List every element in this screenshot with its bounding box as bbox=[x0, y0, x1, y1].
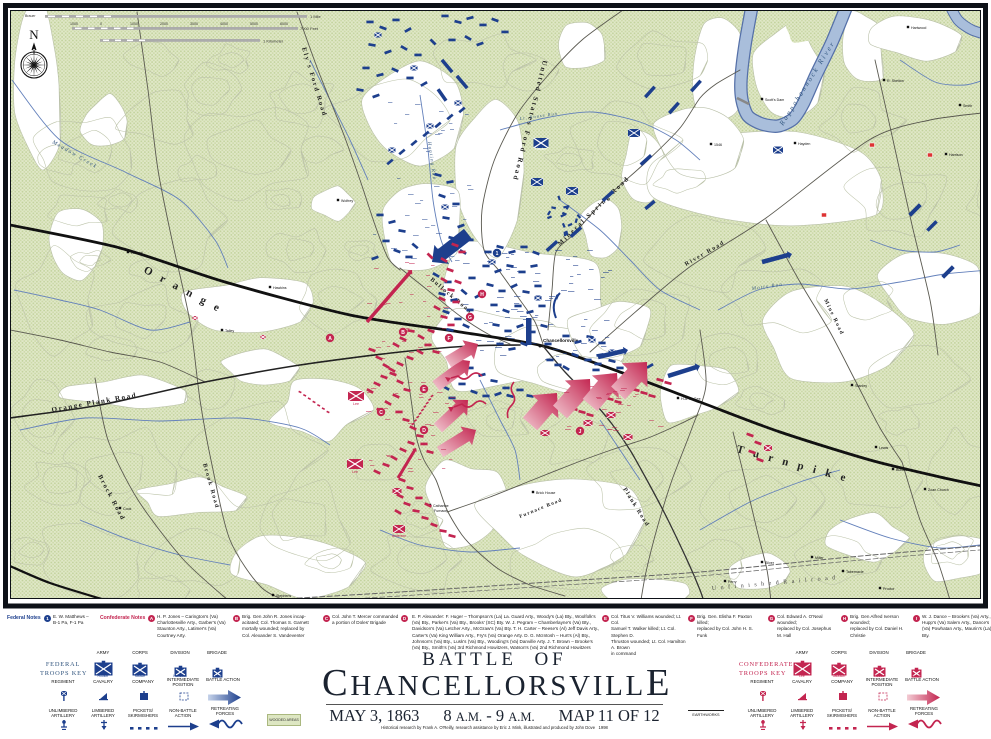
svg-text:7000 Feet: 7000 Feet bbox=[300, 26, 319, 31]
svg-text:Lee: Lee bbox=[353, 402, 359, 406]
svg-text:0: 0 bbox=[100, 22, 102, 26]
svg-text:3000: 3000 bbox=[190, 22, 198, 26]
svg-text:Talley: Talley bbox=[225, 329, 234, 333]
svg-text:Smith: Smith bbox=[963, 104, 972, 108]
svg-text:Furnace: Furnace bbox=[434, 509, 447, 513]
svg-text:Stanley: Stanley bbox=[855, 384, 867, 388]
svg-text:A: A bbox=[328, 336, 332, 342]
svg-text:D: D bbox=[422, 428, 426, 434]
svg-text:Catharine: Catharine bbox=[433, 504, 449, 508]
svg-text:H.A. McGee: H.A. McGee bbox=[681, 397, 701, 401]
svg-text:H: H bbox=[480, 292, 484, 298]
svg-text:Scott's Dam: Scott's Dam bbox=[765, 98, 784, 102]
svg-text:Brick House: Brick House bbox=[536, 491, 555, 495]
svg-text:6000: 6000 bbox=[280, 22, 288, 26]
svg-text:Anderson: Anderson bbox=[392, 534, 406, 538]
svg-text:Brauer: Brauer bbox=[25, 14, 36, 18]
svg-text:1000: 1000 bbox=[70, 22, 78, 26]
svg-text:1 Kilometer: 1 Kilometer bbox=[263, 39, 284, 44]
svg-text:F: F bbox=[447, 336, 450, 342]
svg-text:1546: 1546 bbox=[714, 143, 722, 147]
svg-text:Chancellorsville: Chancellorsville bbox=[543, 338, 579, 343]
svg-text:5000: 5000 bbox=[250, 22, 258, 26]
svg-text:Hooker: Hooker bbox=[535, 147, 547, 151]
svg-text:Harrison: Harrison bbox=[949, 153, 963, 157]
svg-text:B: B bbox=[401, 330, 405, 336]
svg-text:Hawkins: Hawkins bbox=[273, 286, 287, 290]
svg-text:Luckett: Luckett bbox=[131, 251, 143, 255]
svg-text:Lee: Lee bbox=[352, 470, 358, 474]
svg-text:G: G bbox=[468, 315, 472, 321]
svg-text:R. Shelton: R. Shelton bbox=[887, 79, 904, 83]
svg-text:C: C bbox=[379, 410, 383, 416]
svg-text:Stephens: Stephens bbox=[276, 594, 291, 598]
svg-text:Miller: Miller bbox=[815, 556, 824, 560]
svg-text:Zoan Church: Zoan Church bbox=[928, 488, 949, 492]
svg-text:2000: 2000 bbox=[160, 22, 168, 26]
svg-text:Proctor: Proctor bbox=[883, 587, 895, 591]
svg-text:1 Mile: 1 Mile bbox=[310, 14, 321, 19]
svg-text:Perry: Perry bbox=[728, 580, 737, 584]
svg-text:1000: 1000 bbox=[130, 22, 138, 26]
svg-text:Bullard: Bullard bbox=[896, 468, 907, 472]
svg-text:J: J bbox=[579, 429, 582, 435]
svg-text:Wolfrey: Wolfrey bbox=[341, 199, 353, 203]
svg-text:4000: 4000 bbox=[220, 22, 228, 26]
svg-text:Hayden: Hayden bbox=[798, 142, 810, 146]
svg-text:Cook: Cook bbox=[123, 507, 132, 511]
svg-text:1: 1 bbox=[496, 251, 499, 257]
svg-text:Lewis: Lewis bbox=[879, 446, 888, 450]
svg-text:Silver: Silver bbox=[765, 561, 775, 565]
svg-text:N: N bbox=[29, 27, 39, 42]
svg-text:Hartwood: Hartwood bbox=[911, 26, 926, 30]
svg-text:Wellford: Wellford bbox=[452, 600, 465, 604]
svg-text:Tabernacle: Tabernacle bbox=[846, 570, 864, 574]
